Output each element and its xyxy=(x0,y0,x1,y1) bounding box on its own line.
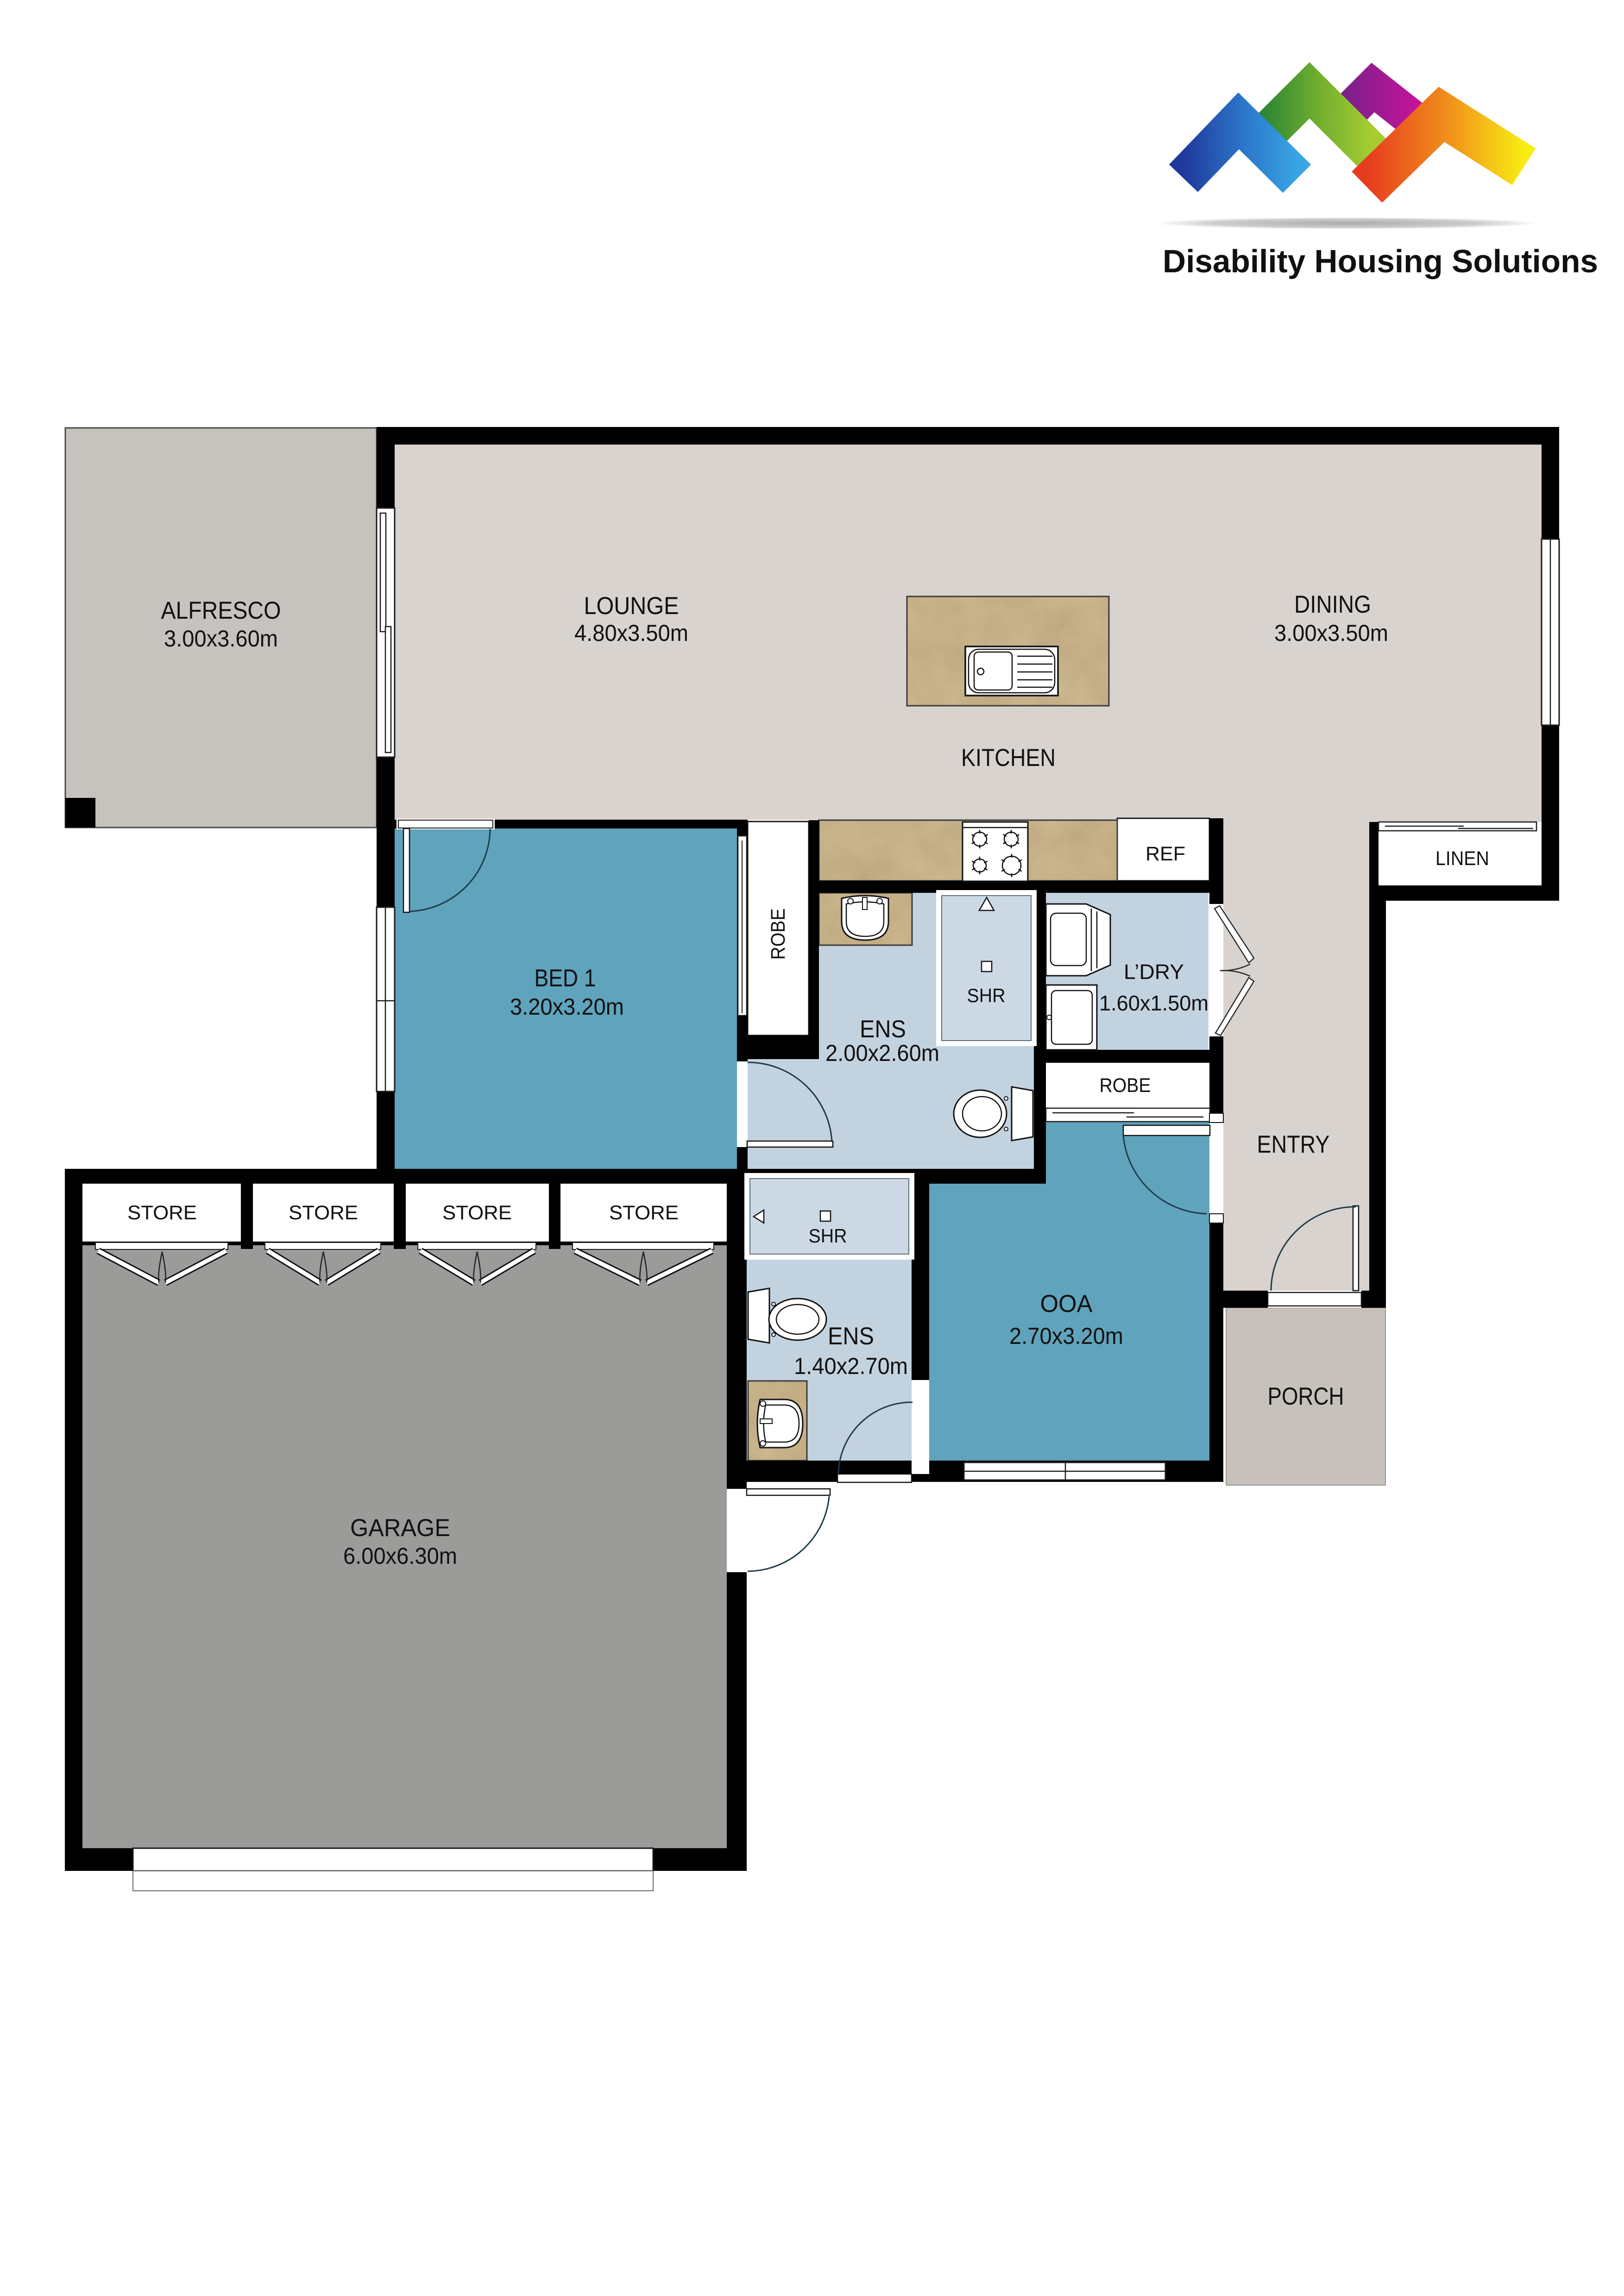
svg-text:DINING: DINING xyxy=(1294,591,1371,618)
svg-text:OOA: OOA xyxy=(1040,1290,1093,1317)
svg-text:Disability Housing Solutions: Disability Housing Solutions xyxy=(1163,243,1598,279)
svg-text:LOUNGE: LOUNGE xyxy=(584,592,679,620)
svg-text:KITCHEN: KITCHEN xyxy=(961,744,1056,772)
svg-text:ENS: ENS xyxy=(828,1323,874,1350)
svg-text:3.20x3.20m: 3.20x3.20m xyxy=(510,994,624,1020)
svg-text:REF: REF xyxy=(1146,843,1185,865)
svg-text:ROBE: ROBE xyxy=(767,909,789,960)
svg-text:6.00x6.30m: 6.00x6.30m xyxy=(343,1543,457,1569)
svg-text:ROBE: ROBE xyxy=(1100,1074,1151,1097)
svg-text:4.80x3.50m: 4.80x3.50m xyxy=(574,620,688,646)
svg-text:STORE: STORE xyxy=(127,1202,197,1224)
svg-text:SHR: SHR xyxy=(967,985,1006,1006)
svg-text:STORE: STORE xyxy=(442,1202,512,1224)
svg-text:SHR: SHR xyxy=(809,1225,847,1247)
svg-text:3.00x3.60m: 3.00x3.60m xyxy=(164,626,278,652)
svg-text:1.60x1.50m: 1.60x1.50m xyxy=(1099,991,1209,1015)
svg-text:ENS: ENS xyxy=(860,1016,906,1043)
svg-text:PORCH: PORCH xyxy=(1268,1383,1344,1410)
svg-text:2.00x2.60m: 2.00x2.60m xyxy=(825,1040,939,1066)
svg-text:2.70x3.20m: 2.70x3.20m xyxy=(1009,1323,1123,1349)
svg-text:3.00x3.50m: 3.00x3.50m xyxy=(1274,620,1388,646)
svg-text:GARAGE: GARAGE xyxy=(350,1514,450,1542)
svg-text:BED 1: BED 1 xyxy=(535,965,596,992)
svg-text:STORE: STORE xyxy=(609,1202,679,1224)
svg-text:STORE: STORE xyxy=(289,1202,358,1224)
svg-text:1.40x2.70m: 1.40x2.70m xyxy=(794,1353,908,1379)
svg-text:ALFRESCO: ALFRESCO xyxy=(161,597,281,624)
svg-text:ENTRY: ENTRY xyxy=(1257,1131,1330,1158)
svg-text:LINEN: LINEN xyxy=(1435,847,1489,870)
svg-text:L’DRY: L’DRY xyxy=(1124,960,1184,984)
